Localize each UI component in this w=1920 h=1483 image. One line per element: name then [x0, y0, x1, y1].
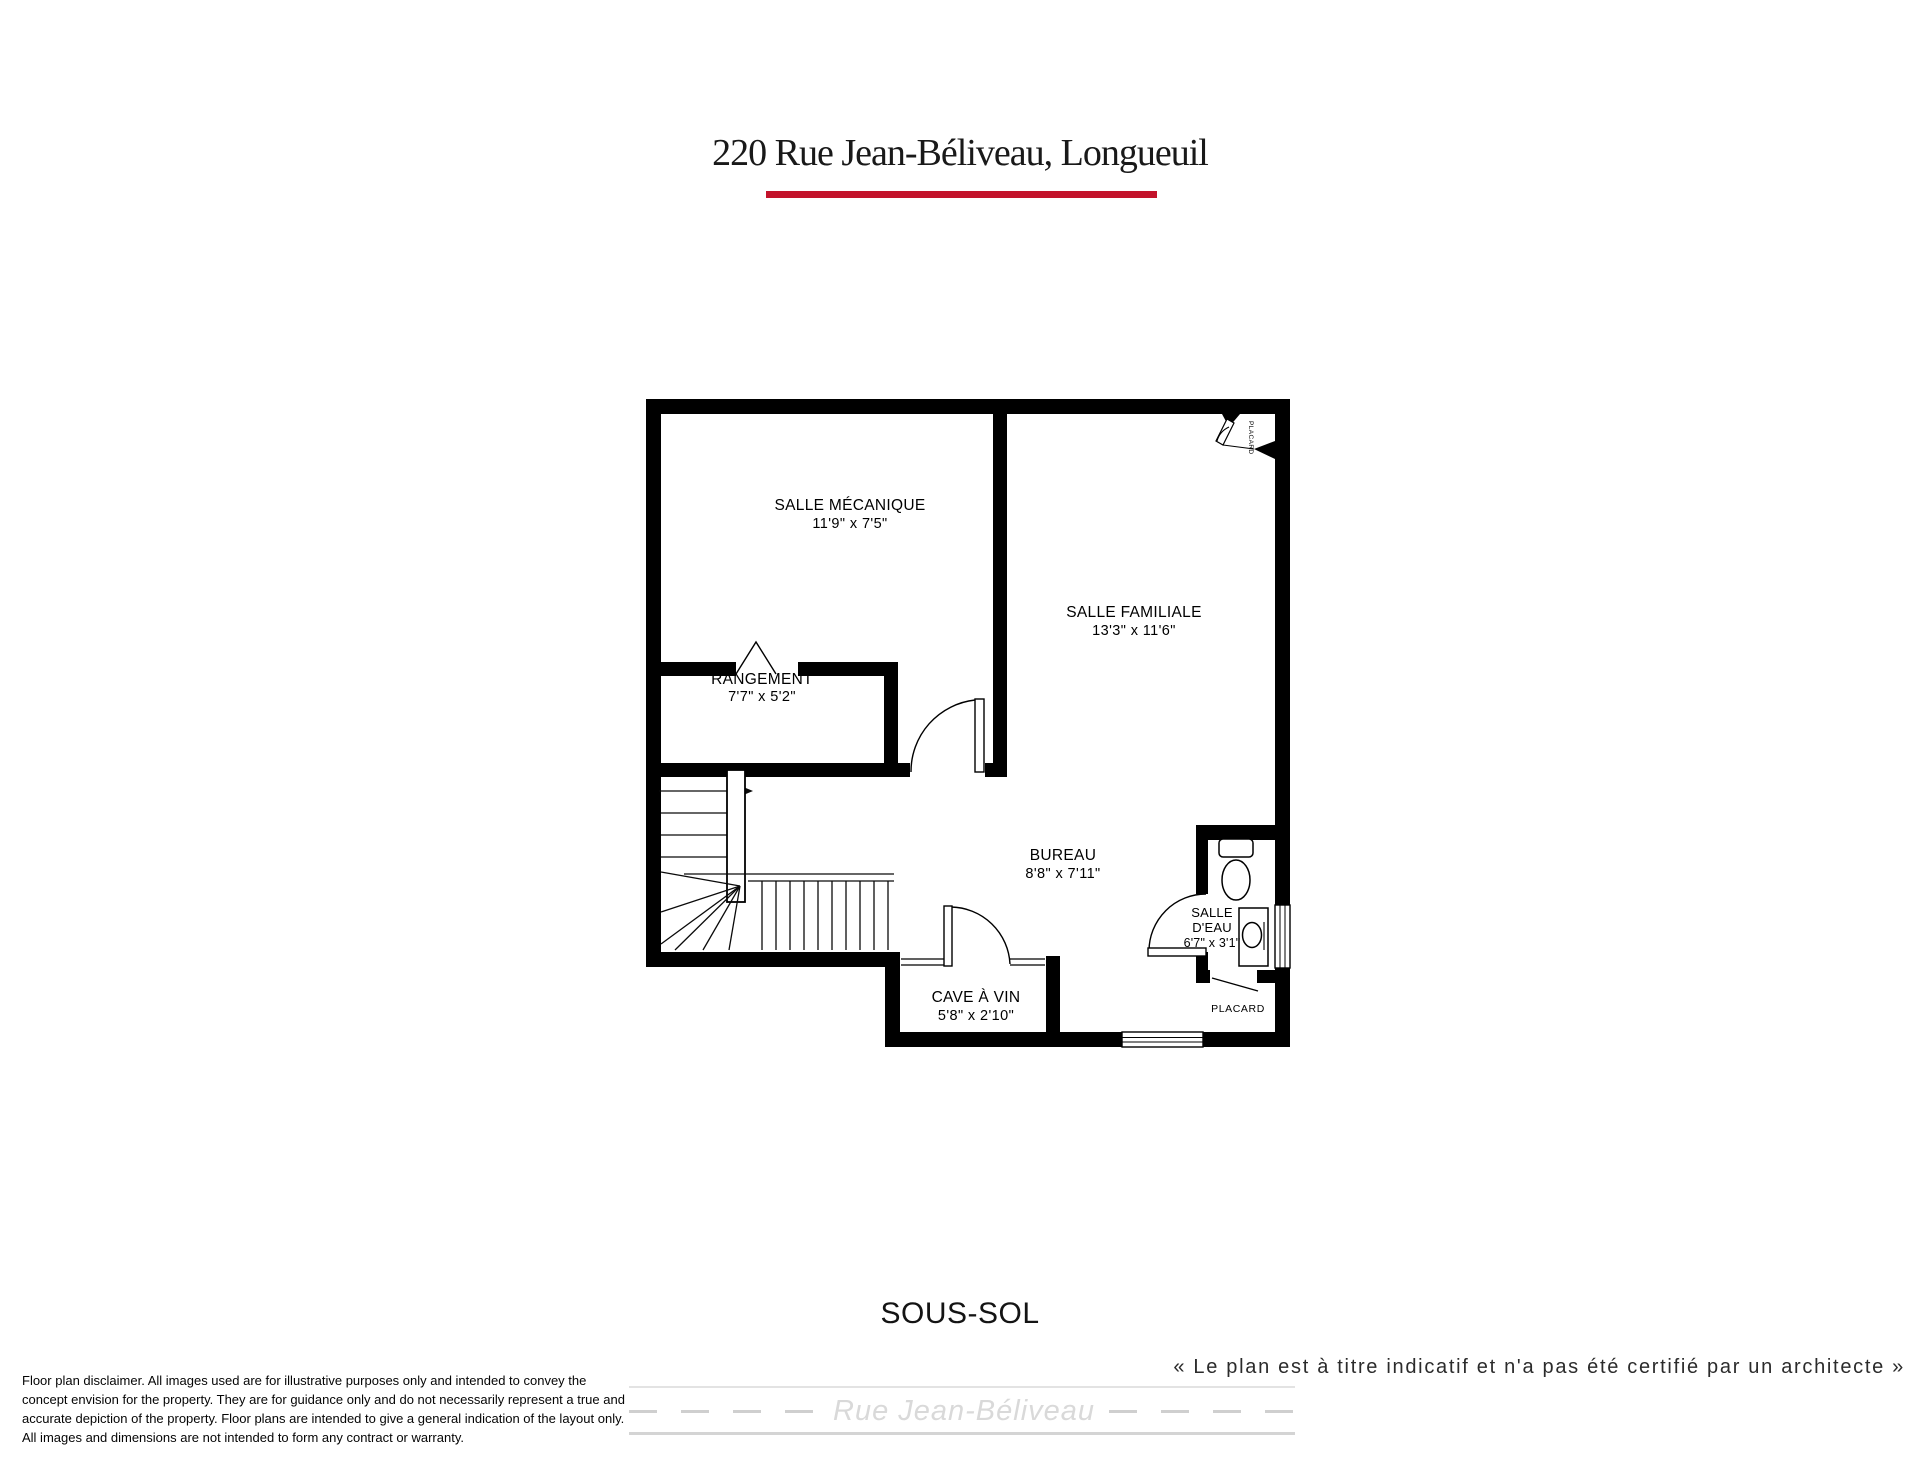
road-dashes-right	[1109, 1410, 1299, 1413]
page-title: 220 Rue Jean-Béliveau, Longueuil	[0, 131, 1920, 175]
room-name: PLACARD	[1247, 421, 1254, 455]
road-centerline: Rue Jean-Béliveau	[629, 1392, 1295, 1430]
opening-chevron-mecanique	[736, 642, 776, 674]
room-name: PLACARD	[1211, 1003, 1265, 1015]
road-dashes-left	[629, 1410, 819, 1413]
door-placard	[1212, 978, 1258, 991]
road-edge-bottom	[629, 1432, 1295, 1435]
room-name: CAVE À VIN	[932, 989, 1021, 1006]
room-label-salle-eau: SALLE D'EAU 6'7" x 3'1"	[1184, 905, 1241, 950]
street-watermark: Rue Jean-Béliveau	[629, 1386, 1295, 1438]
room-name: RANGEMENT	[711, 671, 813, 688]
floor-plan-disclaimer: Floor plan disclaimer. All images used a…	[22, 1371, 625, 1447]
room-dims: 6'7" x 3'1"	[1184, 936, 1241, 950]
road-edge-top	[629, 1386, 1295, 1388]
sink-vanity	[1239, 908, 1268, 966]
flyer-page: 220 Rue Jean-Béliveau, Longueuil	[0, 0, 1920, 1483]
floor-label: SOUS-SOL	[880, 1297, 1039, 1331]
room-dims: 11'9" x 7'5"	[812, 516, 887, 532]
title-underline	[766, 191, 1157, 198]
floor-plan: SALLE MÉCANIQUE 11'9" x 7'5" RANGEMENT 7…	[640, 395, 1300, 1067]
room-label-salle-familiale: SALLE FAMILIALE 13'3" x 11'6"	[1066, 604, 1201, 639]
disclaimer-line: accurate depiction of the property. Floo…	[22, 1409, 625, 1428]
room-dims: 7'7" x 5'2"	[728, 689, 796, 705]
room-label-cave-a-vin: CAVE À VIN 5'8" x 2'10"	[932, 989, 1021, 1024]
street-name: Rue Jean-Béliveau	[819, 1395, 1109, 1428]
door-placard-corner	[1216, 414, 1275, 459]
architect-disclaimer-quote: « Le plan est à titre indicatif et n'a p…	[1173, 1356, 1905, 1379]
door-cave-a-vin	[901, 906, 1045, 966]
room-dims: 13'3" x 11'6"	[1092, 623, 1176, 639]
room-name: SALLE FAMILIALE	[1066, 604, 1201, 621]
disclaimer-line: concept envision for the property. They …	[22, 1390, 625, 1409]
room-name: SALLE MÉCANIQUE	[775, 497, 926, 514]
room-name: BUREAU	[1030, 847, 1096, 864]
window-right-wall	[1275, 905, 1290, 968]
toilet	[1219, 839, 1253, 900]
room-dims: 8'8" x 7'11"	[1025, 866, 1100, 882]
disclaimer-line: All images and dimensions are not intend…	[22, 1428, 625, 1447]
room-label-placard-corner: PLACARD	[1247, 421, 1254, 455]
room-label-salle-mecanique: SALLE MÉCANIQUE 11'9" x 7'5"	[775, 497, 926, 532]
disclaimer-line: Floor plan disclaimer. All images used a…	[22, 1371, 625, 1390]
window-bottom-wall	[1122, 1032, 1203, 1047]
room-label-bureau: BUREAU 8'8" x 7'11"	[1025, 847, 1100, 882]
room-label-placard: PLACARD	[1211, 1003, 1265, 1015]
staircase	[659, 770, 894, 950]
room-dims: 5'8" x 2'10"	[938, 1008, 1014, 1024]
room-name: SALLE	[1191, 905, 1233, 920]
room-name: D'EAU	[1192, 920, 1232, 935]
door-hall	[911, 699, 984, 772]
room-label-rangement: RANGEMENT 7'7" x 5'2"	[711, 671, 813, 705]
